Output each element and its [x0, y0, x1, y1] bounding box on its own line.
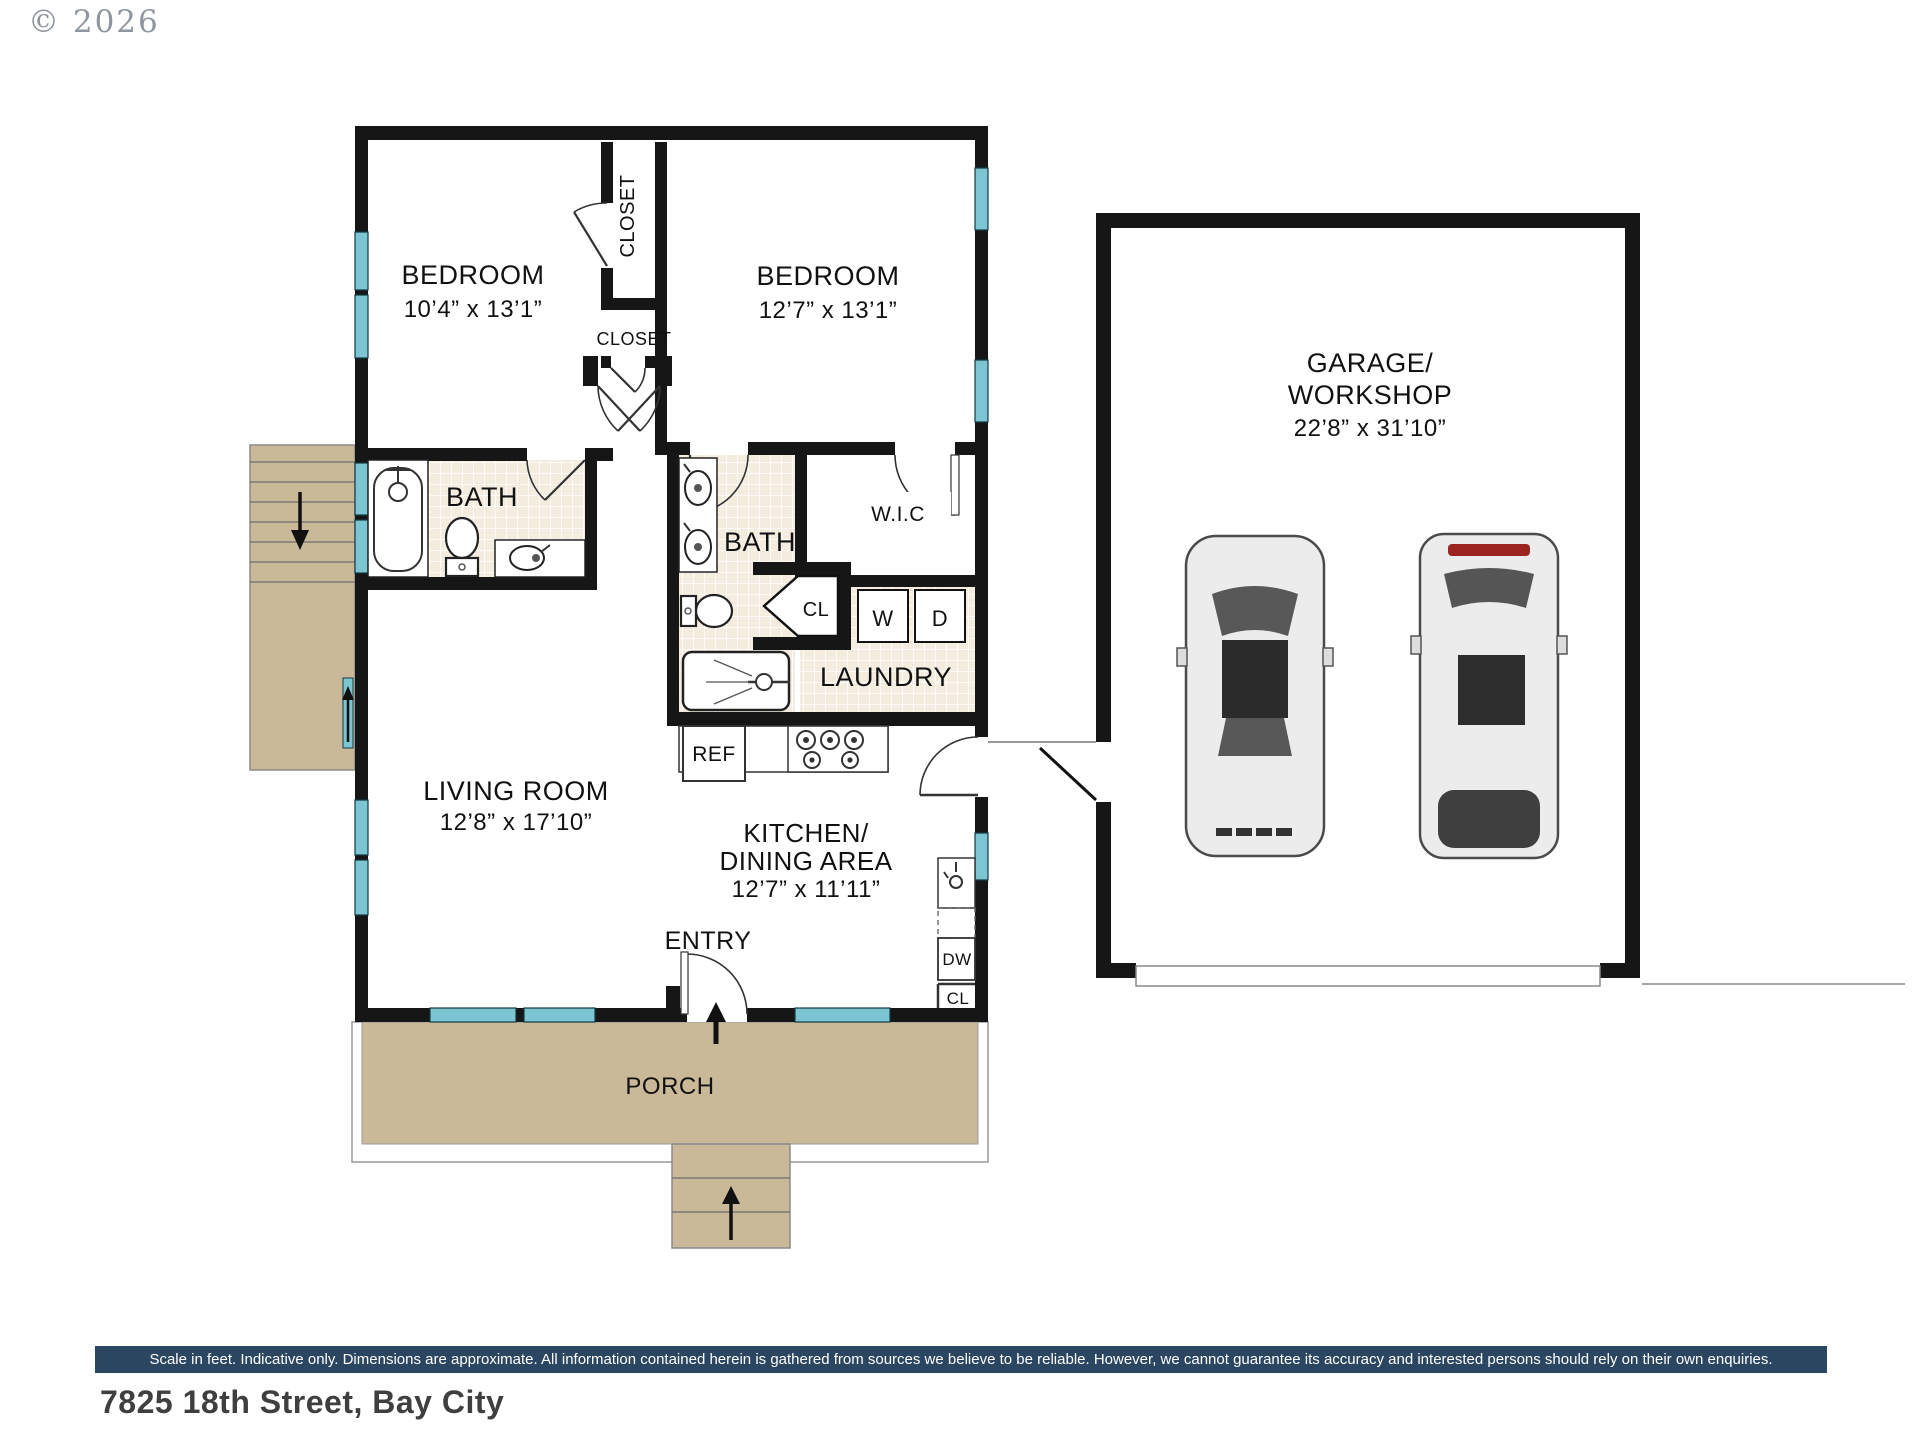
floor-plan-drawing: PORCH	[0, 0, 1920, 1335]
kitchen-closet-label: CL	[947, 989, 970, 1008]
window	[355, 463, 368, 515]
bath2-label: BATH	[724, 527, 796, 557]
entry-door-leaf	[681, 952, 688, 1014]
bedroom2-dims: 12’7” x 13’1”	[759, 297, 898, 324]
wic-label: W.I.C	[871, 503, 925, 526]
window	[795, 1008, 890, 1022]
floor-plan-page: © 2026	[0, 0, 1920, 1440]
porch-label: PORCH	[625, 1073, 714, 1100]
closet-upper-label: CLOSET	[617, 174, 639, 257]
washer-label: W	[872, 606, 893, 631]
fridge-label: REF	[692, 743, 736, 766]
window	[355, 232, 368, 290]
toilet-tank-icon	[446, 558, 478, 576]
entry-label: ENTRY	[665, 927, 752, 955]
tub-drain-icon	[389, 483, 407, 501]
dryer-label: D	[932, 606, 948, 631]
car-suv-icon	[1411, 534, 1567, 858]
porch-steps	[672, 1144, 790, 1248]
closet-lower-label: CLOSET	[596, 329, 671, 349]
window	[975, 833, 988, 880]
bedroom1-label: BEDROOM	[401, 260, 544, 290]
garage-entry-door-leaf	[1040, 748, 1096, 800]
toilet-bowl-icon	[446, 518, 478, 558]
property-address: 7825 18th Street, Bay City	[100, 1384, 504, 1421]
counter-dashed	[938, 908, 975, 938]
porch: PORCH	[352, 1022, 988, 1248]
garage-door	[1136, 966, 1600, 986]
living-room-label: LIVING ROOM	[423, 776, 609, 806]
kitchen-label-line1: KITCHEN/	[743, 818, 869, 848]
toilet-tank-icon	[681, 596, 696, 626]
kitchen-label-line2: DINING AREA	[719, 846, 892, 876]
wic-door-leaf	[951, 455, 959, 515]
laundry-label: LAUNDRY	[820, 662, 952, 692]
kitchen-sink-icon	[950, 876, 962, 888]
bedroom2-label: BEDROOM	[756, 261, 899, 291]
hall-closet-label: CL	[803, 599, 830, 621]
garage-label-line2: WORKSHOP	[1288, 380, 1453, 410]
window	[355, 860, 368, 915]
window	[524, 1008, 595, 1022]
window	[975, 360, 988, 422]
window	[975, 168, 988, 230]
window	[430, 1008, 516, 1022]
toilet-bowl-icon	[696, 595, 732, 627]
disclaimer-bar: Scale in feet. Indicative only. Dimensio…	[95, 1346, 1827, 1373]
garage-label-line1: GARAGE/	[1307, 348, 1434, 378]
garage-dims: 22’8” x 31’10”	[1294, 415, 1446, 442]
window	[355, 800, 368, 855]
side-deck-stairs	[250, 445, 355, 770]
living-room-dims: 12’8” x 17’10”	[440, 809, 592, 836]
bath1-label: BATH	[446, 482, 518, 512]
kitchen-dims: 12’7” x 11’11”	[732, 876, 881, 903]
window	[355, 295, 368, 358]
dishwasher-label: DW	[942, 950, 971, 969]
bedroom1-dims: 10’4” x 13’1”	[404, 296, 543, 323]
car-sedan-icon	[1177, 536, 1333, 856]
tail-light	[1448, 544, 1530, 556]
window	[355, 520, 368, 573]
